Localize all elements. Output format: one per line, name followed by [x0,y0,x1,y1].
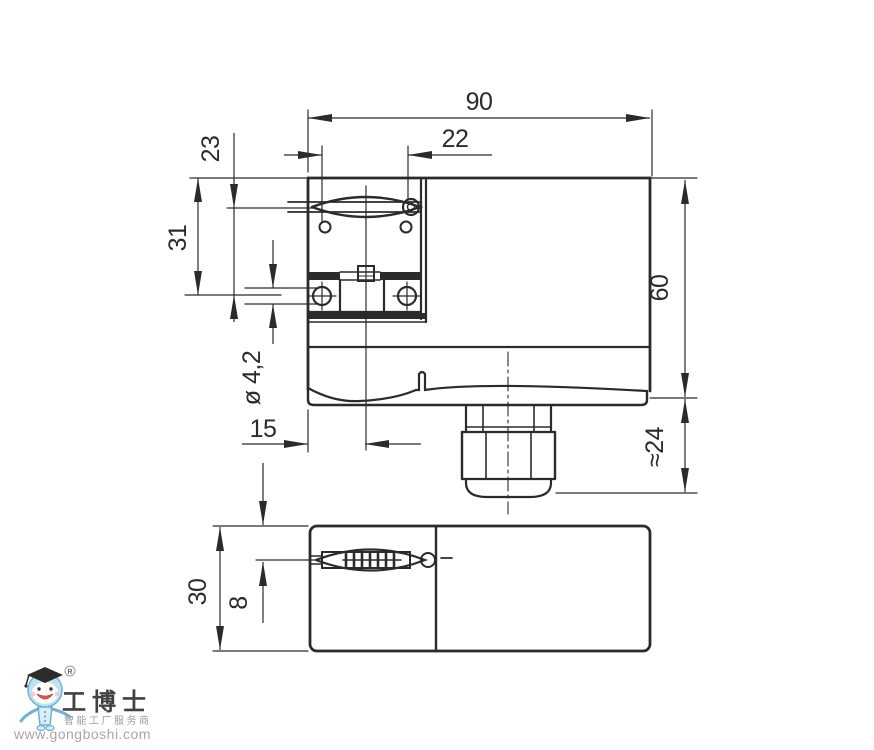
brand-tagline: 智能工厂服务商 [64,712,152,727]
dim-gland-height-24: ≈24 [641,399,689,492]
arrowhead [216,527,224,551]
arrowhead [194,178,202,202]
arrowhead [681,399,689,423]
dim-label-90: 90 [466,88,493,116]
dim-width-total-90: 90 [308,88,650,122]
mounting-screw-right [393,282,421,310]
brand-url: www.gongboshi.com [14,726,151,742]
dim-label-hole-dia: ø 4,2 [238,351,266,405]
dim-height-total-60: 60 [646,180,689,397]
arrowhead [230,184,238,208]
arrowhead [259,501,267,525]
dim-edge-to-center-15: 15 [242,415,421,448]
bracket-foot [308,313,426,319]
arrowhead [681,373,689,397]
cable-gland [462,352,555,514]
arrowhead [269,304,277,328]
dim-depth-total-30: 30 [184,527,224,650]
arrowhead [259,562,267,586]
front-view [185,110,697,514]
arrowhead [408,151,432,159]
dim-hole-spacing-22: 22 [284,125,492,159]
arrowhead [194,271,202,295]
dimensions-top: 30 8 [184,463,267,650]
reference-lines-top [213,526,316,651]
arrowhead [216,626,224,650]
roller-knurling [343,553,401,567]
registered-mark: R [67,669,72,676]
dim-label-24: ≈24 [641,426,669,467]
housing-outline-top [310,526,650,651]
dim-top-to-hole-31: 31 [164,178,202,295]
technical-drawing-page: 90 22 23 31 [0,0,874,750]
arrowhead [230,295,238,319]
screw-hole-left [320,222,331,233]
head-partition [421,180,426,322]
dim-label-15: 15 [250,415,277,443]
screw-hole-right [401,222,412,233]
arrowhead [365,440,389,448]
dimension-drawing: 90 22 23 31 [0,0,874,750]
arrowhead [308,114,332,122]
mounting-screw-left [308,282,336,310]
bottom-flange [308,388,647,405]
dim-slot-offset-8: 8 [225,463,267,623]
dim-label-31: 31 [164,225,192,252]
cover-bottom-wave [308,372,646,401]
top-view [213,526,650,651]
arrowhead [681,468,689,492]
arrowhead [284,440,308,448]
arrowhead [298,151,322,159]
watermark-logo: R 工博士 智能工厂服务商 www.gongboshi.com [12,658,232,746]
dim-label-60: 60 [646,275,674,302]
dim-label-23: 23 [197,136,225,163]
arrowhead [626,114,650,122]
dim-hole-dia-4-2: ø 4,2 [238,240,277,405]
dim-label-8: 8 [225,596,253,609]
dim-label-22: 22 [442,125,469,153]
dim-label-30: 30 [184,579,212,606]
arrowhead [681,180,689,204]
dim-slot-to-hole-23: 23 [197,133,238,322]
arrowhead [269,264,277,288]
